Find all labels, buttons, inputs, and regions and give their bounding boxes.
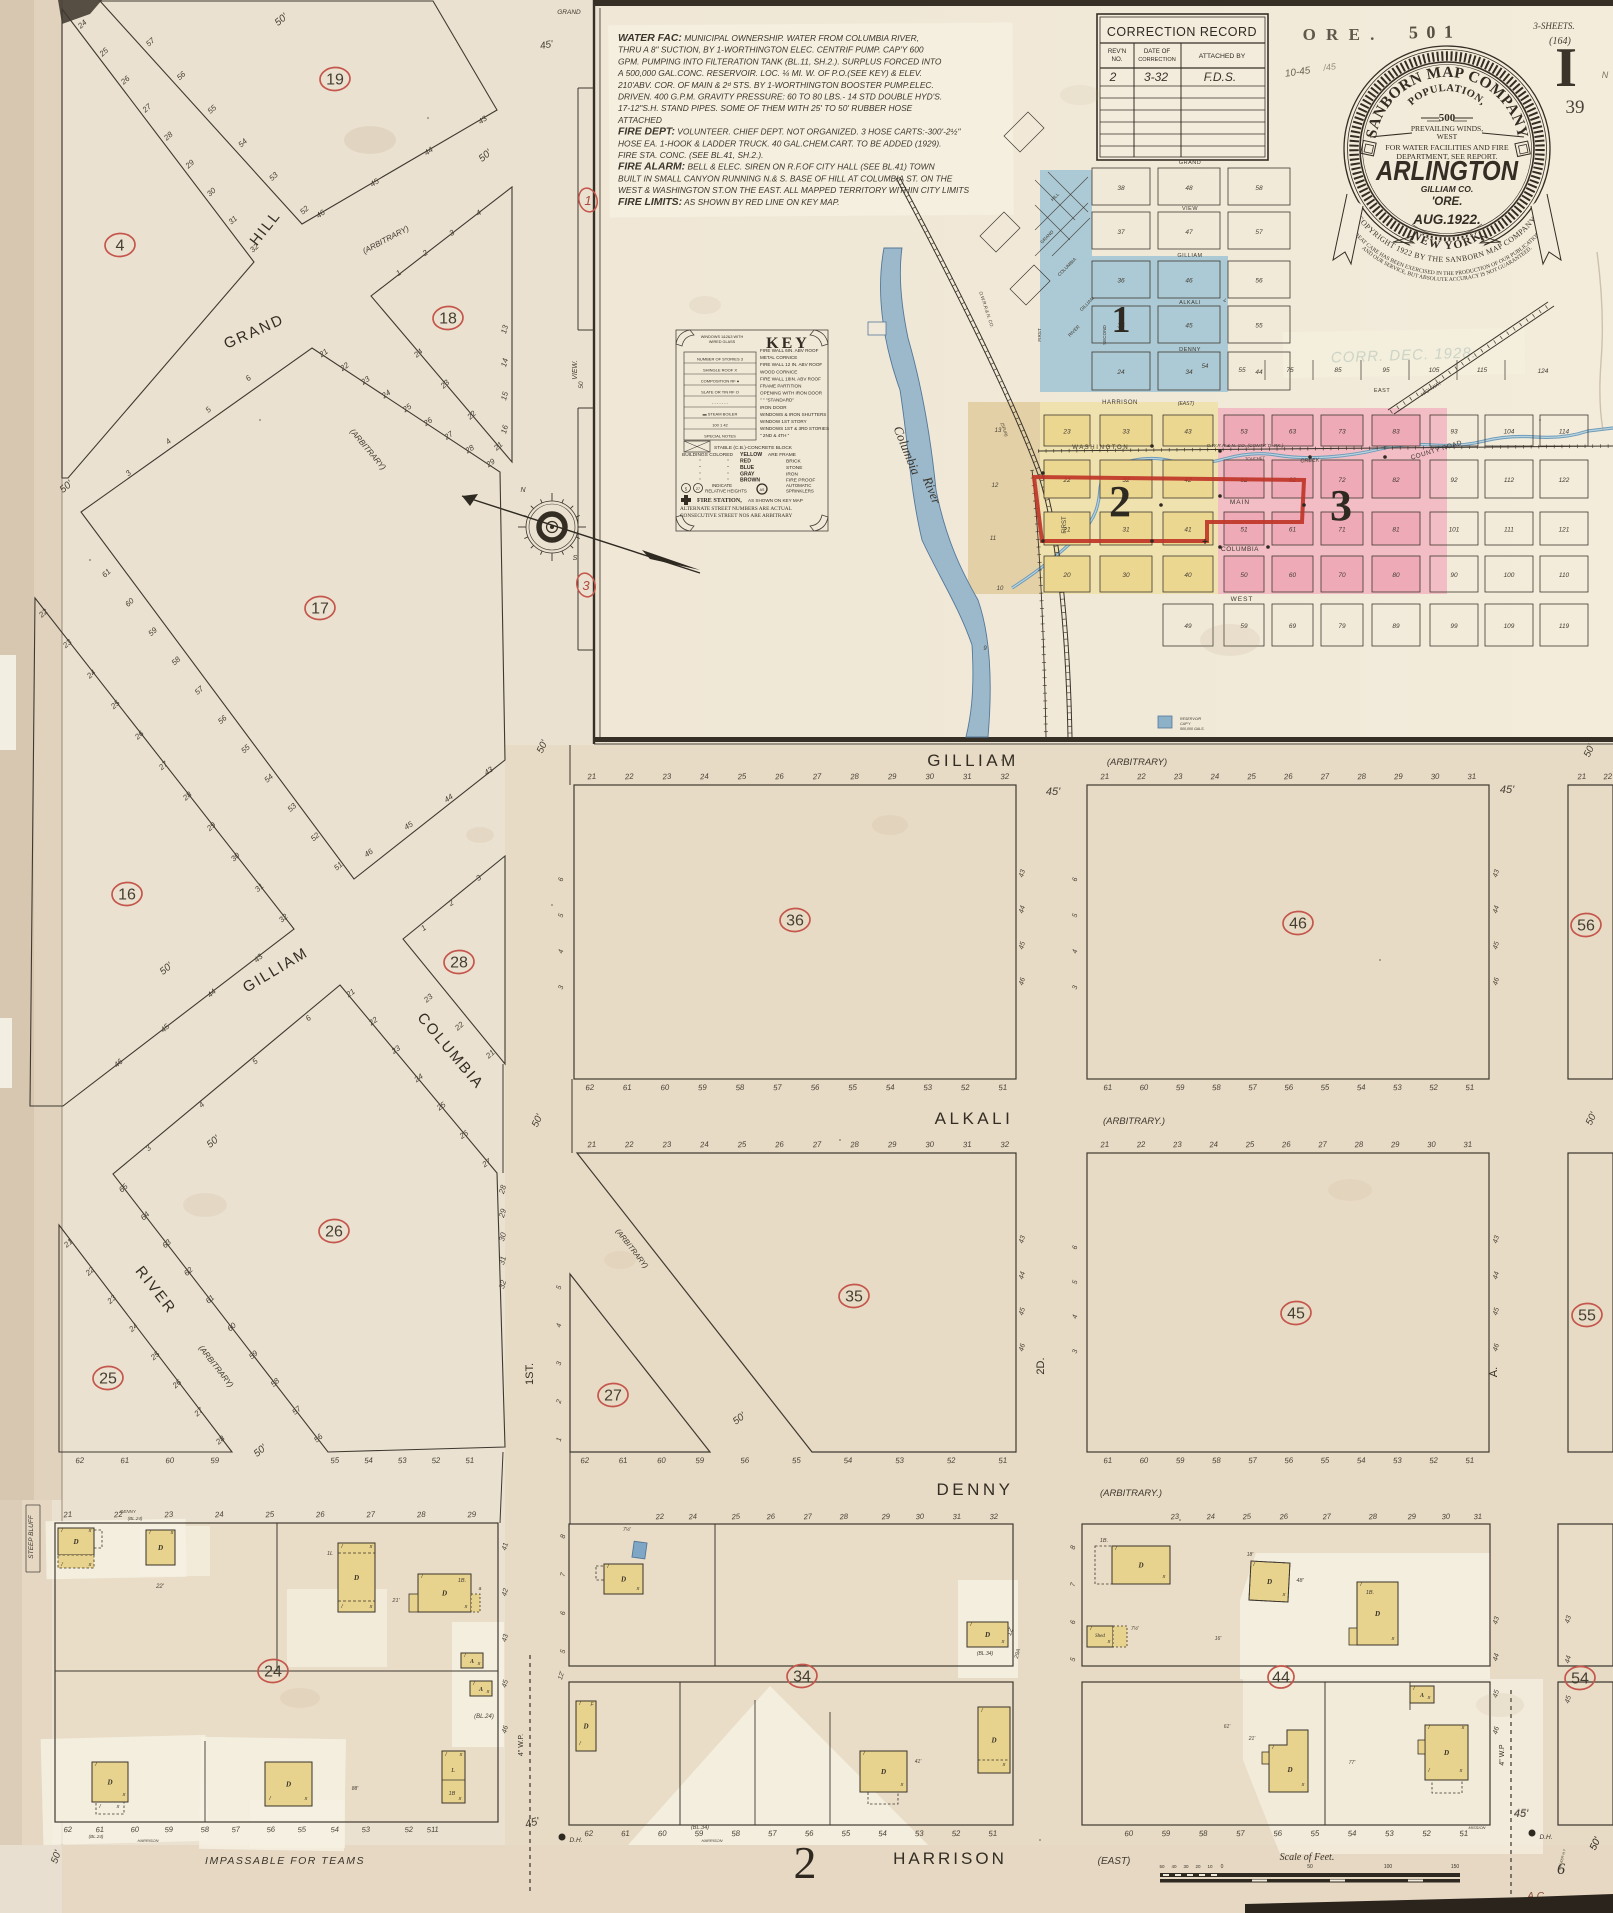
svg-text:52: 52 [1422,1829,1432,1839]
svg-text:DATE OF: DATE OF [1144,48,1171,55]
svg-text:FIRST: FIRST [1062,516,1068,534]
svg-text:A: A [478,1687,483,1693]
svg-text:BROWN: BROWN [740,478,760,484]
svg-text:x: x [369,1604,373,1610]
svg-text:29: 29 [1406,1512,1417,1522]
svg-text:26: 26 [1283,772,1294,782]
svg-text:38: 38 [1117,185,1125,192]
svg-text:56: 56 [1284,1456,1294,1466]
svg-text:112: 112 [1504,477,1515,484]
svg-text:110: 110 [1559,572,1570,579]
svg-text:O R E .: O R E . [1303,25,1378,44]
svg-text:x: x [116,1804,120,1810]
svg-text:D: D [441,1590,447,1598]
svg-text:28: 28 [1367,1512,1378,1522]
svg-text:57: 57 [773,1083,783,1093]
svg-text:x: x [170,1530,174,1536]
svg-text:O.W.R.R.& N. CO. (CONTR´D. RK: O.W.R.R.& N. CO. (CONTR´D. RK.) [1207,443,1284,449]
svg-text:FIRE WALL 18IN. ABV ROOF: FIRE WALL 18IN. ABV ROOF [760,376,821,381]
svg-text:57: 57 [1236,1829,1246,1839]
svg-text:54: 54 [364,1456,374,1466]
svg-text:OPENING WITH IRON DOOR: OPENING WITH IRON DOOR [760,391,823,396]
svg-text:IRON: IRON [786,471,799,477]
svg-text:27: 27 [365,1510,376,1520]
svg-text:119: 119 [1559,623,1570,630]
svg-text:45: 45 [1185,323,1193,330]
svg-text:WINDOWS 1ST & 3RD STORIES: WINDOWS 1ST & 3RD STORIES [760,426,829,431]
svg-text:32: 32 [1000,1140,1010,1150]
svg-text:43: 43 [1184,429,1192,436]
svg-text:NO.: NO. [1111,56,1122,63]
svg-text:27: 27 [1321,1512,1332,1522]
svg-text:D: D [1443,1749,1449,1757]
svg-text:27: 27 [696,487,700,491]
svg-text:WIRED GLASS: WIRED GLASS [709,340,736,344]
svg-text:- - - - - - -: - - - - - - - [712,401,729,406]
svg-text:28: 28 [1353,1140,1364,1150]
svg-text:18: 18 [439,310,457,327]
svg-text:x: x [1002,1762,1006,1768]
svg-text:VIEW.: VIEW. [572,360,579,380]
svg-text:51: 51 [1465,1083,1474,1093]
svg-text:x: x [1427,1695,1431,1701]
svg-text:52: 52 [431,1456,441,1466]
svg-text:511: 511 [426,1825,439,1835]
svg-text:29: 29 [466,1510,477,1520]
svg-text:57: 57 [1248,1456,1258,1466]
svg-text:28: 28 [450,954,468,971]
svg-text:26: 26 [765,1512,776,1522]
svg-text:52: 52 [946,1456,956,1466]
svg-text:40: 40 [1184,572,1192,579]
svg-text:69: 69 [1289,623,1297,630]
svg-text:A: A [469,1659,474,1665]
svg-text:FIRE WALL 12 IN. ABV ROOF: FIRE WALL 12 IN. ABV ROOF [760,362,822,367]
svg-text:RED: RED [740,459,751,465]
svg-text:26: 26 [1281,1140,1292,1150]
svg-text:28: 28 [849,772,860,782]
svg-text:82: 82 [1392,477,1400,484]
svg-text:62: 62 [584,1829,594,1839]
svg-text:150: 150 [1451,1864,1460,1870]
svg-text:73: 73 [1338,429,1346,436]
svg-text:81: 81 [1392,527,1400,534]
svg-text:28: 28 [849,1140,860,1150]
svg-text:GRAND: GRAND [557,9,581,16]
svg-text:D: D [157,1544,163,1552]
svg-text:55: 55 [792,1456,802,1466]
svg-text:61': 61' [1224,1724,1232,1730]
svg-text:22: 22 [624,772,635,782]
svg-text:SECOND: SECOND [1102,324,1107,344]
svg-text:50: 50 [1240,572,1248,579]
svg-text:51: 51 [998,1083,1007,1093]
svg-text:D: D [582,1723,588,1731]
svg-text:60: 60 [1289,572,1297,579]
svg-text:18': 18' [1247,1552,1255,1558]
svg-text:F.D.S.: F.D.S. [1204,70,1236,84]
svg-text:RESERVOIR: RESERVOIR [1180,717,1202,721]
svg-text:x: x [1107,1639,1111,1645]
svg-text:FIRE STATION,: FIRE STATION, [697,497,742,504]
svg-text:77': 77' [1349,1760,1357,1766]
svg-text:4: 4 [116,237,125,254]
svg-text:51: 51 [998,1456,1007,1466]
svg-text:WINDOWS 1&2&3 WITH: WINDOWS 1&2&3 WITH [701,335,744,339]
svg-text:44: 44 [1255,369,1263,376]
svg-text:90: 90 [1450,572,1458,579]
svg-text:24: 24 [699,772,710,782]
svg-text:21: 21 [62,1510,72,1520]
svg-text:500,000 GALS.: 500,000 GALS. [1180,727,1205,731]
svg-text:27: 27 [811,772,822,782]
svg-text:ARLINGTON: ARLINGTON [1375,155,1519,186]
svg-text:46: 46 [1289,915,1307,932]
svg-text:(BL.24): (BL.24) [89,1834,104,1839]
svg-text:36: 36 [786,912,804,929]
svg-text:30: 30 [1427,1140,1437,1150]
svg-text:31: 31 [1473,1512,1482,1522]
svg-text:33: 33 [1122,429,1130,436]
svg-text:45': 45' [1500,784,1515,796]
svg-text:/45: /45 [1322,61,1338,73]
svg-text:4" W.P: 4" W.P [1499,1744,1506,1765]
svg-text:28: 28 [838,1512,849,1522]
svg-text:DRIVEN. 400 G.P.M. GRAVITY PRE: DRIVEN. 400 G.P.M. GRAVITY PRESSURE: 60 … [618,92,942,102]
svg-text:21': 21' [391,1598,400,1604]
svg-text:x: x [900,1782,904,1788]
svg-text:STABLE (C.B.)-CONCRETE BLOCK: STABLE (C.B.)-CONCRETE BLOCK [714,445,793,451]
svg-text:109: 109 [1504,623,1515,630]
svg-text:GILLIAM: GILLIAM [1177,253,1202,259]
svg-text:27: 27 [1319,772,1330,782]
svg-text:23: 23 [163,1510,174,1520]
svg-text:S: S [573,555,578,562]
svg-text:ATTACHED: ATTACHED [617,115,662,125]
svg-text:61: 61 [1103,1083,1112,1093]
svg-text:REV'N: REV'N [1108,48,1126,55]
svg-text:26: 26 [774,1140,785,1150]
svg-text:57: 57 [768,1829,778,1839]
svg-text:36: 36 [1117,278,1125,285]
svg-text:FIRE DEPT: VOLUNTEER. CHIEF DE: FIRE DEPT: VOLUNTEER. CHIEF DEPT. NOT OR… [618,127,962,138]
svg-text:32: 32 [989,1512,999,1522]
svg-text:FIRE STA. CONC. (SEE BL.41, S: FIRE STA. CONC. (SEE BL.41, SH.2.). [618,150,764,160]
svg-text:I: I [1555,37,1577,99]
svg-text:ALKALI: ALKALI [935,1109,1014,1128]
svg-text:75: 75 [1286,367,1294,374]
svg-text:GILLIAM: GILLIAM [927,751,1019,770]
svg-text:30: 30 [925,772,935,782]
svg-text:54: 54 [1347,1829,1357,1839]
svg-text:ALTERNATE STREET NUMBERS ARE A: ALTERNATE STREET NUMBERS ARE ACTUAL [680,506,792,512]
svg-text:STEEP BLUFF: STEEP BLUFF [28,1514,35,1558]
svg-text:25: 25 [736,772,747,782]
svg-text:ARE FRAME: ARE FRAME [768,452,796,458]
svg-text:5 0 1: 5 0 1 [1409,22,1455,43]
svg-text:COMPOSITION RF ●: COMPOSITION RF ● [701,379,740,384]
svg-text:34: 34 [1185,369,1193,376]
svg-text:30: 30 [915,1512,925,1522]
svg-text:54: 54 [1356,1083,1366,1093]
svg-text:FIRST: FIRST [1037,328,1042,341]
svg-text:21: 21 [1576,772,1586,782]
svg-text:FRAME PARTITION: FRAME PARTITION [760,384,801,389]
svg-text:88': 88' [352,1786,360,1792]
svg-text:27: 27 [1317,1140,1328,1150]
svg-text:59: 59 [695,1456,705,1466]
svg-text:115: 115 [1477,367,1488,374]
svg-text:IMPASSABLE FOR TEAMS: IMPASSABLE FOR TEAMS [205,1855,365,1867]
svg-text:x: x [88,1528,92,1534]
svg-text:(BL.24): (BL.24) [474,1714,494,1720]
svg-text:x: x [459,1752,463,1758]
svg-text:23: 23 [1062,429,1071,436]
svg-text:2D.: 2D. [1035,1357,1047,1374]
svg-text:55: 55 [297,1825,307,1835]
svg-text:56: 56 [1284,1083,1294,1093]
svg-text:114: 114 [1559,429,1570,436]
svg-text:(BL.34): (BL.34) [977,1651,994,1657]
svg-text:20: 20 [1195,1864,1201,1869]
svg-text:D: D [880,1768,886,1776]
svg-text:58: 58 [200,1825,210,1835]
svg-text:21': 21' [1248,1736,1257,1742]
svg-text:52: 52 [1429,1456,1439,1466]
svg-text:1B.: 1B. [1366,1590,1374,1596]
svg-text:A.: A. [1222,298,1227,302]
svg-text:YELLOW: YELLOW [740,452,762,458]
svg-text:58: 58 [1212,1083,1222,1093]
svg-text:26: 26 [325,1223,343,1240]
svg-text:1: 1 [584,193,591,208]
svg-text:62: 62 [75,1456,85,1466]
svg-text:MISSION: MISSION [1469,1825,1486,1830]
svg-text:0: 0 [1221,1864,1224,1870]
svg-text:1B: 1B [449,1791,456,1797]
svg-text:60: 60 [657,1456,667,1466]
svg-text:41: 41 [1184,527,1192,534]
svg-text:39: 39 [1566,97,1585,118]
svg-text:GRAND: GRAND [1179,160,1201,166]
svg-text:54: 54 [1202,364,1209,370]
svg-text:x: x [122,1792,126,1798]
svg-text:HARRISON: HARRISON [701,1838,722,1843]
svg-text:57: 57 [231,1825,241,1835]
svg-text:63: 63 [1289,429,1297,436]
svg-text:54: 54 [1356,1456,1366,1466]
svg-text:(ARBITRARY): (ARBITRARY) [1107,757,1167,768]
svg-text:59: 59 [1175,1456,1185,1466]
svg-text:FOR WATER FACILITIES AND FIRE: FOR WATER FACILITIES AND FIRE [1385,143,1508,152]
svg-text:WOOD CORNICE: WOOD CORNICE [760,369,797,374]
svg-text:53: 53 [895,1456,905,1466]
svg-text:37: 37 [1117,229,1125,236]
svg-text:x: x [1461,1725,1465,1731]
svg-text:89: 89 [1392,623,1400,630]
svg-text:48: 48 [1185,185,1193,192]
svg-text:500: 500 [1439,112,1456,124]
svg-text:53: 53 [398,1456,408,1466]
svg-text:58: 58 [1198,1829,1208,1839]
svg-text:21: 21 [1099,1140,1109,1150]
svg-text:22: 22 [1602,772,1613,782]
svg-text:D.H.: D.H. [1540,1834,1553,1841]
svg-text:HOSE EA. 1-HOOK & LADDER TRUCK: HOSE EA. 1-HOOK & LADDER TRUCK. 40 GAL.C… [618,138,941,148]
svg-text:46: 46 [1185,278,1193,285]
svg-text:(BL.34): (BL.34) [691,1825,709,1831]
svg-text:CONSECUTIVE STREET NOS ARE ARB: CONSECUTIVE STREET NOS ARE ARBITRARY [680,513,793,519]
svg-text:29: 29 [880,1512,891,1522]
svg-text:SPECIAL NOTES: SPECIAL NOTES [704,434,736,439]
svg-text:D: D [72,1538,78,1546]
svg-text:54: 54 [885,1083,895,1093]
svg-text:124: 124 [1538,368,1549,375]
svg-text:AS: AS [760,488,765,492]
svg-text:53: 53 [1393,1456,1403,1466]
svg-text:3-SHEETS.: 3-SHEETS. [1532,21,1574,31]
svg-text:95: 95 [1382,367,1390,374]
svg-text:AS SHOWN ON KEY MAP: AS SHOWN ON KEY MAP [748,498,803,503]
svg-text:53: 53 [923,1083,933,1093]
svg-text:11: 11 [990,536,996,542]
svg-text:GILLIAM CO.: GILLIAM CO. [1421,184,1473,194]
svg-text:30: 30 [1430,772,1440,782]
svg-text:58: 58 [731,1829,741,1839]
svg-text:ALKALI: ALKALI [1179,300,1201,306]
svg-text:x: x [1459,1768,1463,1774]
svg-text:93: 93 [1450,429,1458,436]
svg-text:(EAST): (EAST) [1178,401,1195,407]
svg-text:27: 27 [802,1512,813,1522]
svg-text:CAP'Y: CAP'Y [1180,722,1191,726]
svg-text:3: 3 [582,578,590,593]
svg-text:10: 10 [997,586,1004,592]
svg-text:WEST: WEST [1231,596,1254,603]
svg-text:54: 54 [878,1829,888,1839]
svg-text:54: 54 [1571,1670,1589,1687]
svg-text:60: 60 [165,1456,175,1466]
svg-text:55: 55 [848,1083,858,1093]
svg-text:29: 29 [1393,772,1404,782]
svg-text:99: 99 [1450,623,1458,630]
svg-text:56: 56 [1577,917,1595,934]
svg-text:56: 56 [1255,278,1263,285]
svg-text:THRU A 8" SUCTION, BY 1-WORTHI: THRU A 8" SUCTION, BY 1-WORTHINGTON ELEC… [618,45,924,55]
svg-text:60: 60 [1139,1083,1149,1093]
svg-text:1ST.: 1ST. [524,1363,536,1385]
svg-text:x: x [88,1562,92,1568]
svg-text:HARRISON: HARRISON [1102,400,1138,406]
svg-text:59: 59 [164,1825,174,1835]
svg-text:x: x [1001,1639,1005,1645]
svg-text:83: 83 [1392,429,1400,436]
svg-text:45': 45' [1046,786,1061,798]
svg-text:80: 80 [1392,572,1400,579]
svg-text:54: 54 [330,1825,339,1835]
svg-text:32: 32 [1000,772,1010,782]
svg-text:121: 121 [1559,527,1570,534]
svg-text:24: 24 [264,1663,282,1680]
svg-text:56: 56 [810,1083,820,1093]
svg-text:79: 79 [1338,623,1346,630]
svg-text:19: 19 [326,71,344,88]
svg-text:51: 51 [465,1456,474,1466]
svg-text:17: 17 [311,600,329,617]
svg-text:51: 51 [1240,527,1248,534]
svg-text:x: x [1301,1782,1305,1788]
svg-text:x: x [369,1544,373,1550]
svg-text:(ARBITRARY.): (ARBITRARY.) [1103,1116,1165,1127]
svg-text:30: 30 [1122,572,1130,579]
svg-text:D: D [990,1737,996,1745]
svg-text:FIRE WALL 6IN. ABV ROOF: FIRE WALL 6IN. ABV ROOF [760,348,819,353]
svg-text:47: 47 [1185,229,1193,236]
svg-text:61: 61 [95,1825,104,1835]
svg-text:55: 55 [1238,367,1246,374]
svg-text:70: 70 [1338,572,1346,579]
svg-text:D: D [285,1781,291,1789]
svg-text:ʺ ʺ "STANDARD": ʺ ʺ "STANDARD" [760,397,794,403]
svg-text:51: 51 [1465,1456,1474,1466]
svg-text:29: 29 [886,1140,897,1150]
svg-text:105: 105 [1429,367,1440,374]
svg-text:EAST: EAST [1374,388,1391,394]
svg-text:SHINGLE ROOF X: SHINGLE ROOF X [703,368,737,373]
svg-text:45': 45' [1514,1808,1529,1820]
svg-text:60: 60 [660,1083,670,1093]
svg-text:30: 30 [925,1140,935,1150]
svg-text:(ARBITRARY.): (ARBITRARY.) [1100,1488,1162,1499]
svg-text:29: 29 [886,772,897,782]
svg-text:A 500,000 GAL.CONC. RESERVOIR.: A 500,000 GAL.CONC. RESERVOIR. LOC. ¼ MI… [617,68,922,78]
svg-text:31: 31 [963,772,972,782]
svg-text:62: 62 [580,1456,590,1466]
svg-text:4" W.P.: 4" W.P. [518,1734,525,1756]
svg-text:x: x [1282,1592,1286,1598]
svg-text:51: 51 [988,1829,997,1839]
svg-text:x: x [636,1586,640,1592]
svg-text:▬ STEAM BOILER: ▬ STEAM BOILER [703,412,738,417]
svg-text:26: 26 [774,772,785,782]
svg-text:HARRISON: HARRISON [137,1838,158,1843]
svg-text:1B.: 1B. [1100,1538,1108,1544]
svg-text:54: 54 [843,1456,853,1466]
svg-text:35: 35 [845,1288,863,1305]
svg-text:44: 44 [1272,1669,1290,1686]
svg-text:x: x [1162,1574,1166,1580]
svg-text:55: 55 [841,1829,851,1839]
svg-text:25: 25 [736,1140,747,1150]
svg-text:+: + [1202,537,1208,548]
svg-text:21: 21 [586,772,596,782]
svg-text:2: 2 [794,1837,817,1888]
svg-text:IRON DOOR: IRON DOOR [760,405,787,410]
svg-text:59: 59 [1161,1829,1171,1839]
svg-text:53: 53 [1385,1829,1395,1839]
svg-text:D: D [1137,1562,1143,1570]
svg-text:21: 21 [586,1140,596,1150]
svg-text:50: 50 [578,381,585,389]
svg-text:55: 55 [1310,1829,1320,1839]
svg-text:40: 40 [1171,1864,1177,1869]
svg-text:26: 26 [315,1510,326,1520]
svg-text:210'ABV. COR. OF MAIN & 2ᵈ STS: 210'ABV. COR. OF MAIN & 2ᵈ STS. BY 1-WOR… [617,80,934,90]
svg-text:D.H.: D.H. [570,1837,583,1844]
svg-text:92: 92 [1450,477,1458,484]
svg-text:58: 58 [735,1083,745,1093]
svg-text:22': 22' [155,1584,165,1590]
